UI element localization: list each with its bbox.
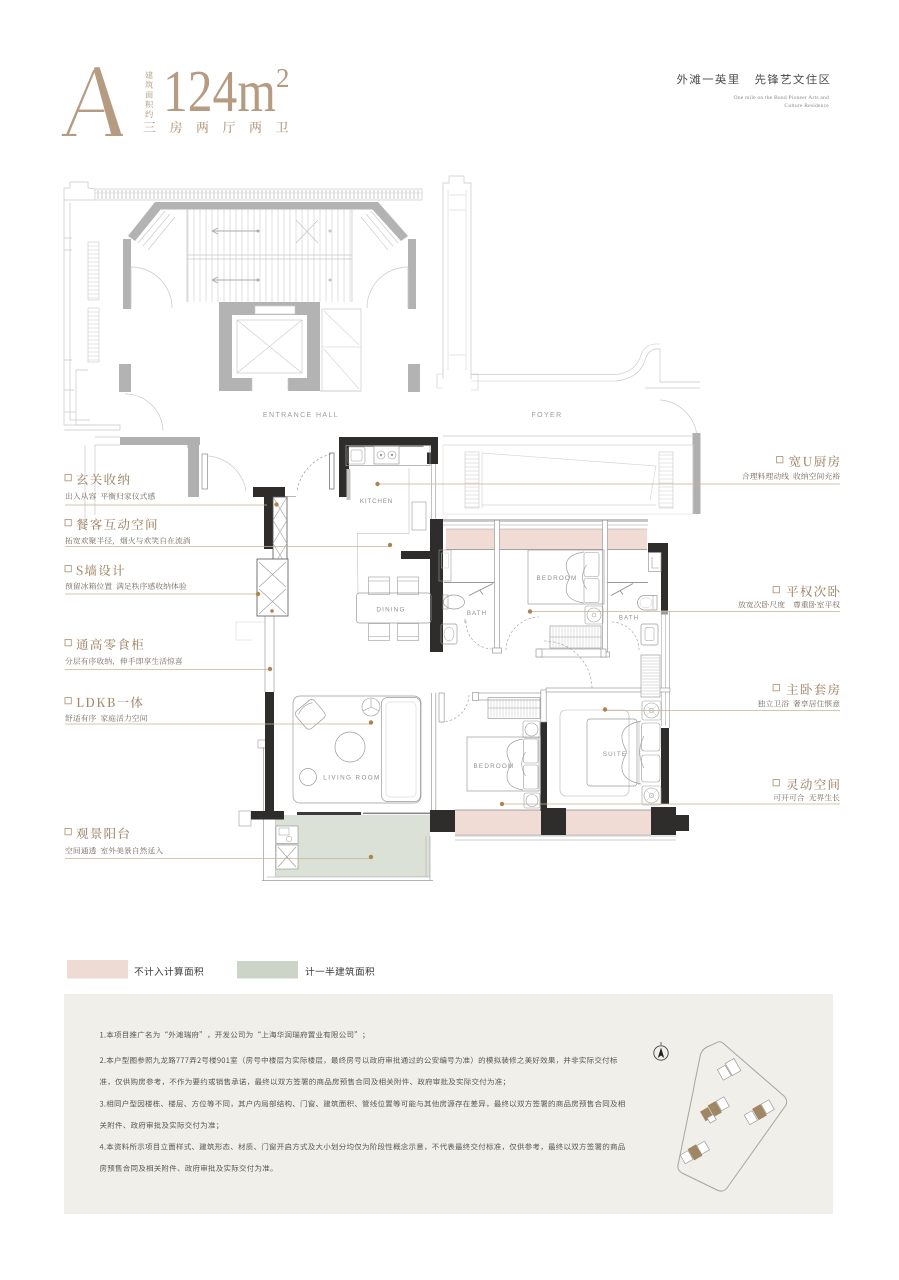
svg-text:ENTRANCE HALL: ENTRANCE HALL [263,412,339,419]
svg-text:2: 2 [276,63,290,93]
svg-text:SUITE: SUITE [603,751,628,758]
svg-text:BEDROOM: BEDROOM [474,763,515,770]
svg-text:KITCHEN: KITCHEN [360,498,393,505]
svg-text:One mile on the Bund Pioneer A: One mile on the Bund Pioneer Arts and [734,95,830,101]
svg-text:124m: 124m [163,58,276,124]
svg-text:BEDROOM: BEDROOM [537,575,578,582]
svg-text:LIVING ROOM: LIVING ROOM [323,775,380,782]
svg-text:BATH: BATH [467,610,487,617]
svg-text:BATH: BATH [619,615,639,622]
svg-text:DINING: DINING [376,607,405,614]
svg-text:FOYER: FOYER [531,412,562,419]
svg-text:Culture Residence: Culture Residence [784,103,829,109]
